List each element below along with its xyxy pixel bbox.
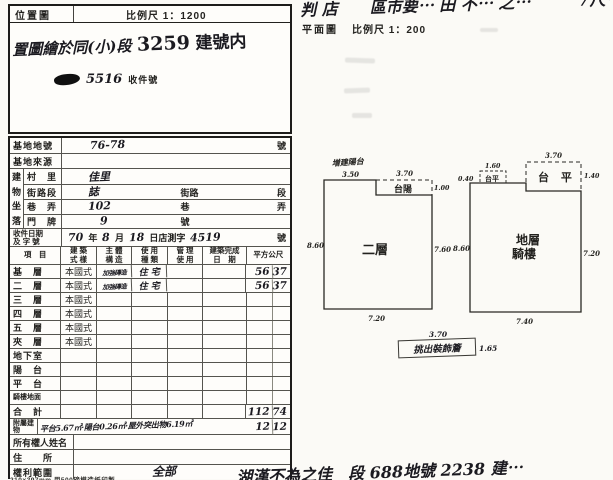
eave-dim-right: 1.65: [479, 344, 497, 353]
annex-note: 平台5.67㎡·陽台0.26㎡·屋外突出物6.19㎡: [38, 418, 193, 434]
eave-label: 挑出裝飾簷: [398, 338, 477, 359]
floor-label: 陽 台: [10, 363, 61, 376]
row-label: 街路段: [24, 185, 62, 199]
area-dec: 37: [272, 265, 290, 279]
location-map-scale: 比例尺 1：1200: [126, 7, 207, 22]
scanned-survey-form: 位置圖 比例尺 1：1200 置圖繪於同(小)段 3259 建號内 5516 收…: [0, 0, 613, 480]
room-label-second-floor: 二層: [362, 243, 388, 258]
table-row-floor: 夾 層 本國式: [10, 334, 290, 348]
area-dec: 37: [272, 279, 290, 293]
lane-value: 102: [62, 199, 111, 214]
location-map-panel: 位置圖 比例尺 1：1200 置圖繪於同(小)段 3259 建號内 5516 收…: [8, 4, 292, 134]
table-row-floor: 基 層 本國式 加強磚造 住 宅 56 37: [10, 264, 290, 278]
scan-smudge: [344, 88, 370, 94]
receipt-word-label: 日店測字: [149, 231, 185, 244]
structure-value: 加強磚造: [97, 278, 133, 292]
owner-name-label: 所有權人姓名: [10, 435, 74, 449]
table-row-receipt: 收件日期 及 字 號 70 年 8 月 18 日店測字 4519 號: [10, 228, 290, 246]
total-area-int: 112: [246, 405, 272, 419]
row-label: 巷 弄: [24, 200, 62, 214]
floor-plan-scale: 比例尺 1：200: [352, 21, 426, 36]
use-value: 住 宅: [132, 264, 168, 278]
receipt-label-line2: 及 字 號: [13, 238, 40, 246]
row-suffix: 段: [277, 186, 290, 199]
platform-label: 台 平: [538, 170, 576, 184]
location-map-header: 位置圖 比例尺 1：1200: [10, 6, 290, 23]
site-number-value: 76-78: [62, 138, 126, 153]
row-label: 門 牌: [24, 215, 62, 229]
plan-annotation: 増建陽台: [331, 156, 365, 168]
table-row-floor: 四 層 本國式: [10, 306, 290, 320]
style-value: 本國式: [61, 335, 96, 348]
note-suffix: 建號内: [195, 32, 247, 54]
dim-right: 7.20: [583, 249, 600, 258]
column-header: 平方公尺: [253, 251, 283, 260]
table-row-floor: 五 層 本國式: [10, 320, 290, 334]
scan-smudge: [345, 57, 375, 63]
dim-notch-height: 1.00: [434, 185, 450, 192]
table-row-floor: 平 台: [10, 376, 290, 390]
dim-notch-height: 1.40: [584, 173, 600, 180]
table-row-floor: 二 層 本國式 加強磚造 住 宅 56 37: [10, 278, 290, 292]
total-area-dec: 74: [272, 405, 290, 419]
street-value: 誌: [62, 183, 100, 200]
style-value: 本國式: [61, 265, 96, 278]
table-row-total: 合 計 112 74: [10, 404, 290, 418]
style-value: 本國式: [61, 293, 96, 306]
structure-value: 加強磚造: [97, 264, 133, 278]
table-row-door-number: 門 牌 9 號: [24, 214, 290, 229]
form-document: 位置圖 比例尺 1：1200 置圖繪於同(小)段 3259 建號内 5516 收…: [8, 4, 292, 479]
room-label-ground-line1: 地層: [516, 232, 540, 247]
table-row-floor: 陽 台: [10, 362, 290, 376]
total-label: 合 計: [10, 405, 61, 418]
door-mid-label: 號: [181, 215, 190, 228]
unit-label: 月: [115, 231, 124, 244]
floor-plan-second: 増建陽台 3.50 3.70 台陽 1.00 8.60 7.60 7.20 二層: [306, 150, 456, 330]
scan-smudge: [480, 28, 498, 32]
row-suffix: 弄: [277, 200, 290, 213]
column-header: 項 目: [24, 251, 47, 260]
area-int: 56: [246, 279, 272, 293]
door-number-value: 9: [62, 214, 108, 229]
stamp-label: 收件號: [128, 73, 158, 86]
floor-plan-ground: 1.60 0.40 台平 3.70 台 平 1.40 8.60 7.20 7.4…: [450, 143, 613, 335]
location-map-note: 置圖繪於同(小)段 3259 建號内: [9, 19, 248, 60]
receipt-number: 4519: [190, 230, 221, 244]
style-value: 本國式: [61, 307, 96, 320]
row-label: 基地地號: [10, 138, 62, 153]
stamp-mark-icon: [53, 72, 80, 87]
style-value: 本國式: [61, 279, 96, 292]
floor-label: 二 層: [10, 279, 61, 292]
unit-label: 年: [88, 231, 97, 244]
annex-label: 附屬建物: [10, 419, 38, 434]
address-group-chars: 建 物 坐 落: [10, 169, 24, 228]
owner-address-label: 住 所: [10, 450, 74, 464]
street-mid-label: 街路: [181, 186, 199, 199]
location-map-title: 位置圖: [10, 6, 74, 22]
table-row-floor: 三 層 本國式: [10, 292, 290, 306]
table-header-row: 項 目 建 築式 樣 主 體構 造 使 用種 類 管 理使 用 建築完成日 期 …: [10, 246, 290, 264]
dim-right: 7.60: [434, 245, 451, 254]
annex-area-int: 12: [246, 419, 273, 435]
dim-bottom: 7.40: [516, 317, 533, 326]
floor-label: 夾 層: [10, 335, 61, 348]
area-int: 56: [246, 265, 272, 279]
row-label: 基地來源: [10, 154, 62, 168]
style-value: 本國式: [61, 321, 96, 334]
floor-plan-title: 平面圖: [302, 21, 338, 36]
stamp-number: 5516: [86, 72, 122, 87]
dim-small-left: 0.40: [458, 176, 474, 183]
balcony-label: 台陽: [394, 183, 412, 195]
small-platform-label: 台平: [485, 174, 499, 183]
receipt-day: 18: [129, 231, 145, 245]
cutoff-handwriting-top: 判 店 區市要⋯ 田 不⋯ 之⋯ 7尺⋯: [300, 0, 613, 21]
table-row-owner-address: 住 所: [10, 449, 290, 464]
table-row-street: 街路段 誌 街路 段: [24, 184, 290, 199]
table-row-site-number: 基地地號 76-78 號: [10, 138, 290, 153]
note-prefix: 置圖繪於同(小)段: [12, 37, 132, 59]
table-row-site-source: 基地來源: [10, 153, 290, 168]
village-value: 佳里: [62, 168, 111, 186]
floor-label: 地下室: [10, 349, 61, 362]
survey-table: 基地地號 76-78 號 基地來源 建 物 坐 落: [8, 136, 292, 479]
receipt-year: 70: [68, 231, 84, 245]
floor-label: 平 台: [10, 377, 61, 390]
receipt-month: 8: [102, 231, 110, 244]
floor-label: 基 層: [10, 265, 61, 278]
receipt-stamp: 5516 收件號: [54, 72, 290, 87]
row-label: 村 里: [24, 169, 62, 184]
dim-left: 8.60: [307, 241, 324, 250]
group-char: 建: [10, 169, 23, 184]
row-suffix: 號: [277, 139, 290, 152]
floor-label: 四 層: [10, 307, 61, 320]
table-row-lane: 巷 弄 102 巷 弄: [24, 199, 290, 214]
table-row-owner-name: 所有權人姓名: [10, 434, 290, 449]
table-row-village: 村 里 佳里: [24, 169, 290, 184]
lane-mid-label: 巷: [181, 200, 190, 213]
dim-left: 8.60: [453, 244, 470, 253]
row-suffix: 號: [277, 231, 290, 244]
note-building-number: 3259: [137, 32, 191, 56]
address-group: 建 物 坐 落 村 里 佳里 街路段 誌 街路 段: [10, 168, 290, 228]
dim-top: 3.70: [396, 169, 413, 178]
eave-detail: 3.70 挑出裝飾簷 1.65: [386, 330, 506, 357]
floor-label: 三 層: [10, 293, 61, 306]
table-row-annex: 附屬建物 平台5.67㎡·陽台0.26㎡·屋外突出物6.19㎡ 12 12: [10, 418, 290, 434]
floor-label: 騎樓地面: [10, 391, 61, 404]
group-char: 落: [10, 213, 23, 228]
use-value: 住 宅: [132, 278, 168, 292]
dim-top-left: 3.50: [342, 170, 359, 179]
annex-area-dec: 12: [272, 419, 291, 435]
dim-bottom: 7.20: [368, 314, 385, 323]
dim-top: 3.70: [545, 151, 562, 160]
floor-label: 五 層: [10, 321, 61, 334]
dim-small-top: 1.60: [485, 163, 501, 170]
room-label-ground-line2: 騎樓: [512, 246, 536, 261]
group-char: 物: [10, 184, 23, 199]
table-row-floor: 地下室: [10, 348, 290, 362]
scan-smudge: [352, 113, 372, 118]
paper-size-note: 210×297mm 用500磅模造紙印製: [10, 474, 115, 480]
floor-plan-header: 平面圖 比例尺 1：200: [302, 21, 426, 36]
group-char: 坐: [10, 199, 23, 214]
row-label: 收件日期 及 字 號: [10, 229, 62, 246]
table-row-floor: 騎樓地面: [10, 390, 290, 404]
